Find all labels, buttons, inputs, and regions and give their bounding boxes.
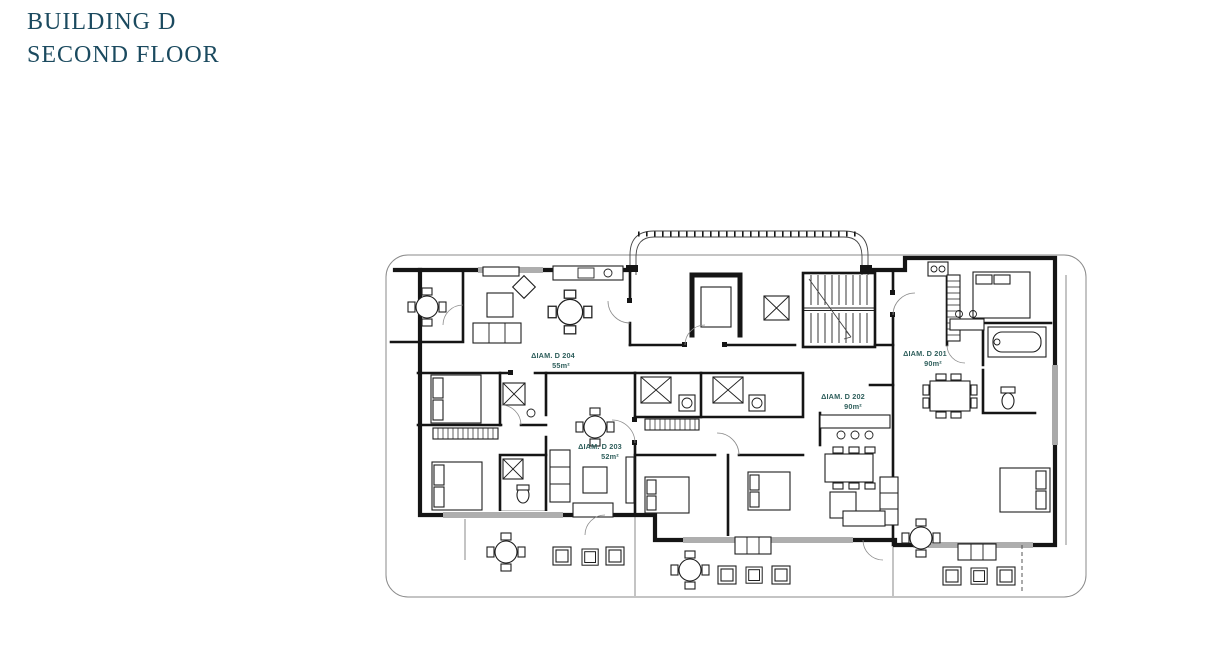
shaft xyxy=(764,296,789,320)
apartment-d201-furniture xyxy=(923,262,1050,512)
building-title: BUILDING D xyxy=(27,6,220,39)
apartment-label-d201: ΔΙΑΜ. D 201 xyxy=(903,349,947,358)
pillow xyxy=(994,275,1010,284)
dining-table xyxy=(825,454,873,482)
pillow xyxy=(433,400,443,420)
pillow xyxy=(433,378,443,398)
pillow xyxy=(434,465,444,485)
coffee-table xyxy=(583,467,607,493)
bottom-right-balcony xyxy=(902,519,1022,592)
sofa-small xyxy=(573,503,613,517)
sofa xyxy=(735,537,771,554)
kitchen-counter xyxy=(820,415,890,428)
staircase xyxy=(803,273,875,347)
rug xyxy=(513,276,536,299)
stool xyxy=(865,431,873,439)
pillow xyxy=(750,492,759,507)
pillow xyxy=(1036,491,1046,509)
dining-table xyxy=(930,381,970,411)
pillow xyxy=(1036,471,1046,489)
floor-plan: ΔΙΑΜ. D 204 55m² ΔΙΑΜ. D 203 52m² ΔΙΑΜ. … xyxy=(383,215,1090,600)
apartment-label-d204: ΔΙΑΜ. D 204 xyxy=(531,351,576,360)
sideboard xyxy=(483,267,519,276)
toilet xyxy=(1002,393,1014,409)
wardrobe xyxy=(947,275,960,341)
apartment-area-d201: 90m² xyxy=(924,359,942,368)
pillow xyxy=(647,496,656,510)
bottom-center-balcony xyxy=(671,537,790,589)
kitchen-island xyxy=(950,319,984,330)
bottom-left-balcony xyxy=(487,533,624,571)
page: BUILDING D SECOND FLOOR xyxy=(0,0,1208,667)
sofa-small xyxy=(843,511,885,526)
top-left-balcony xyxy=(391,270,463,342)
sink xyxy=(527,409,535,417)
floor-title: SECOND FLOOR xyxy=(27,39,220,72)
floor-plan-drawing: ΔΙΑΜ. D 204 55m² ΔΙΑΜ. D 203 52m² ΔΙΑΜ. … xyxy=(383,215,1090,600)
apartment-label-d202: ΔΙΑΜ. D 202 xyxy=(821,392,865,401)
apartment-d202-furniture xyxy=(645,415,898,526)
pillow xyxy=(647,480,656,494)
coffee-table xyxy=(487,293,513,317)
apartment-labels: ΔΙΑΜ. D 204 55m² ΔΙΑΜ. D 203 52m² ΔΙΑΜ. … xyxy=(531,349,947,461)
closet xyxy=(645,419,699,430)
pillow xyxy=(750,475,759,490)
apartment-label-d203: ΔΙΑΜ. D 203 xyxy=(578,442,622,451)
toilet-tank xyxy=(1001,387,1015,393)
curved-balcony xyxy=(626,231,872,275)
stool xyxy=(851,431,859,439)
bathroom-band xyxy=(641,377,765,430)
apartment-area-d203: 52m² xyxy=(601,452,619,461)
apartment-d204-furniture xyxy=(431,266,623,423)
sofa xyxy=(958,544,996,560)
pillow xyxy=(976,275,992,284)
sofa xyxy=(473,323,521,343)
pillow xyxy=(434,487,444,507)
sofa xyxy=(550,450,570,502)
apartment-area-d202: 90m² xyxy=(844,402,862,411)
dining-table-round xyxy=(548,290,592,334)
stool xyxy=(837,431,845,439)
tv-unit xyxy=(626,457,634,503)
washing-machine xyxy=(679,395,695,411)
dining-table-round xyxy=(576,408,614,446)
page-title: BUILDING D SECOND FLOOR xyxy=(27,6,220,72)
apartment-area-d204: 55m² xyxy=(552,361,570,370)
washing-machine xyxy=(749,395,765,411)
